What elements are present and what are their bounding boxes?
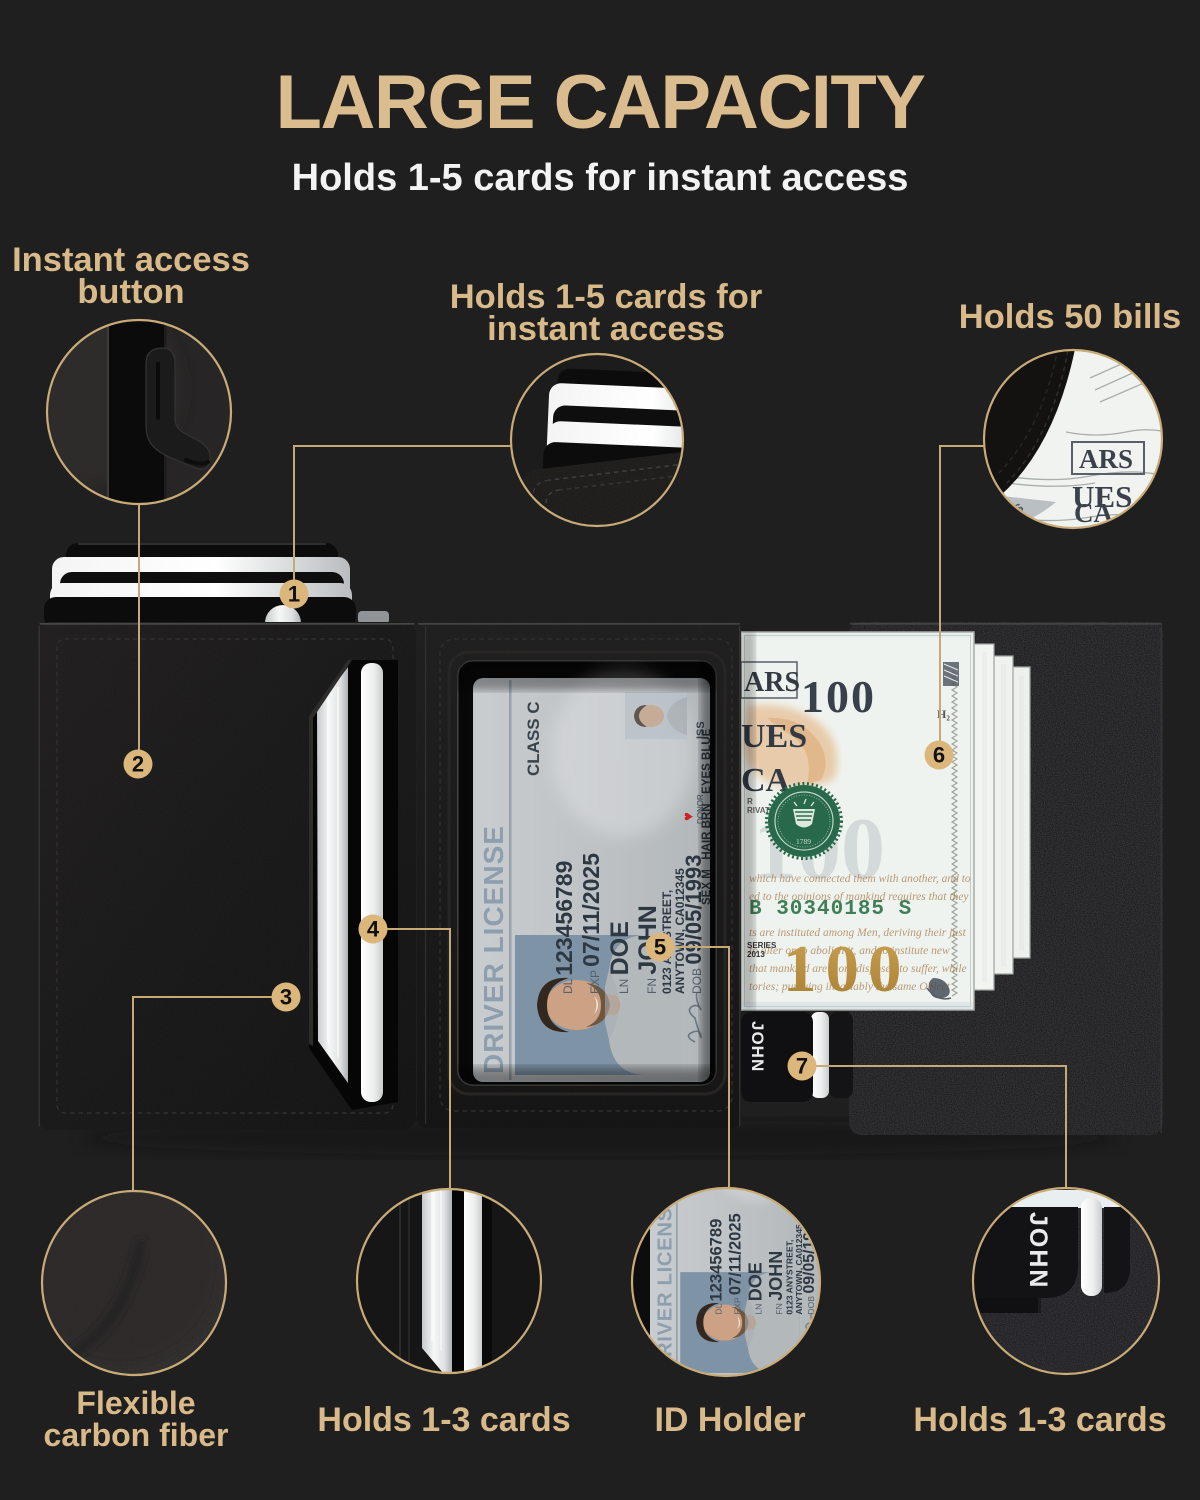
svg-text:JOHN: JOHN bbox=[748, 1021, 767, 1072]
svg-text:ID Holder: ID Holder bbox=[654, 1401, 805, 1439]
svg-text:carbon fiber: carbon fiber bbox=[44, 1417, 229, 1453]
svg-text:button: button bbox=[77, 273, 184, 311]
svg-text:6: 6 bbox=[933, 743, 945, 768]
svg-text:2: 2 bbox=[132, 752, 144, 777]
svg-text:LARGE CAPACITY: LARGE CAPACITY bbox=[276, 60, 926, 145]
svg-text:1: 1 bbox=[288, 582, 300, 607]
svg-text:3: 3 bbox=[280, 985, 292, 1010]
svg-text:instant access: instant access bbox=[487, 310, 725, 348]
svg-text:Holds 50 bills: Holds 50 bills bbox=[959, 298, 1181, 336]
svg-text:4: 4 bbox=[367, 917, 380, 942]
svg-text:Holds 1-5 cards for instant ac: Holds 1-5 cards for instant access bbox=[292, 157, 909, 199]
svg-text:Holds 1-3 cards: Holds 1-3 cards bbox=[317, 1401, 570, 1439]
svg-text:JOHN: JOHN bbox=[1024, 1212, 1052, 1289]
svg-text:Flexible: Flexible bbox=[76, 1385, 195, 1421]
svg-text:Holds 1-3 cards: Holds 1-3 cards bbox=[913, 1401, 1166, 1439]
svg-text:7: 7 bbox=[796, 1054, 808, 1079]
svg-text:ARS: ARS bbox=[1079, 444, 1133, 474]
svg-text:5: 5 bbox=[654, 935, 666, 960]
